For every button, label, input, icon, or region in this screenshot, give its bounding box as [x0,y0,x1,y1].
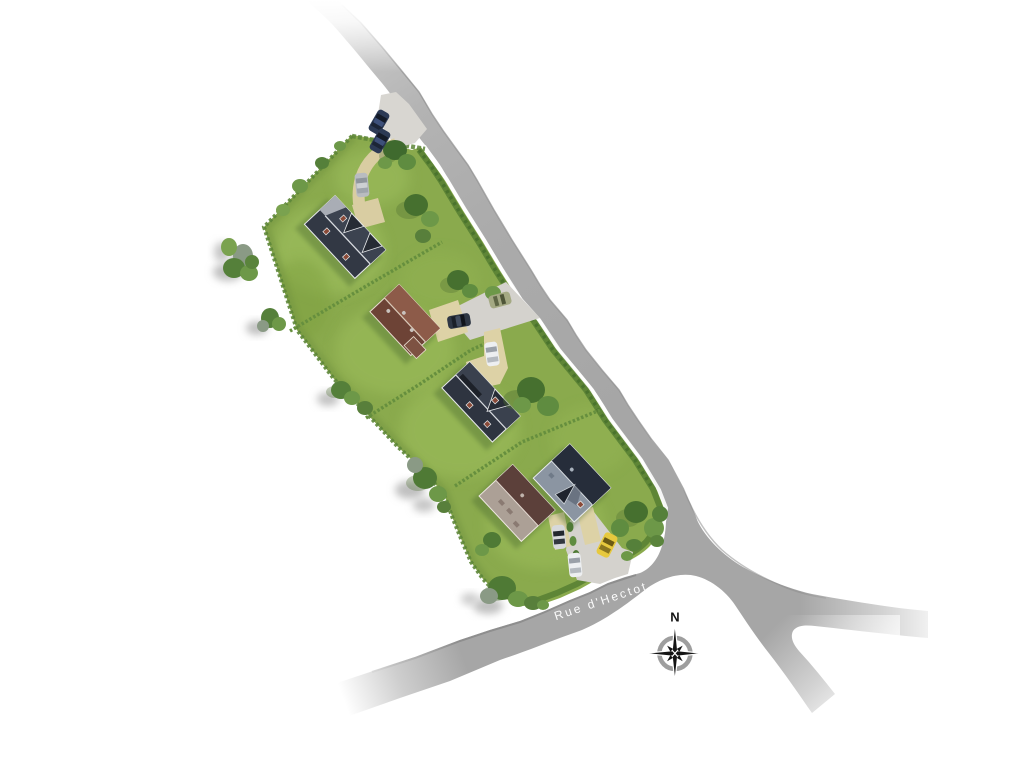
svg-text:N: N [670,610,679,625]
